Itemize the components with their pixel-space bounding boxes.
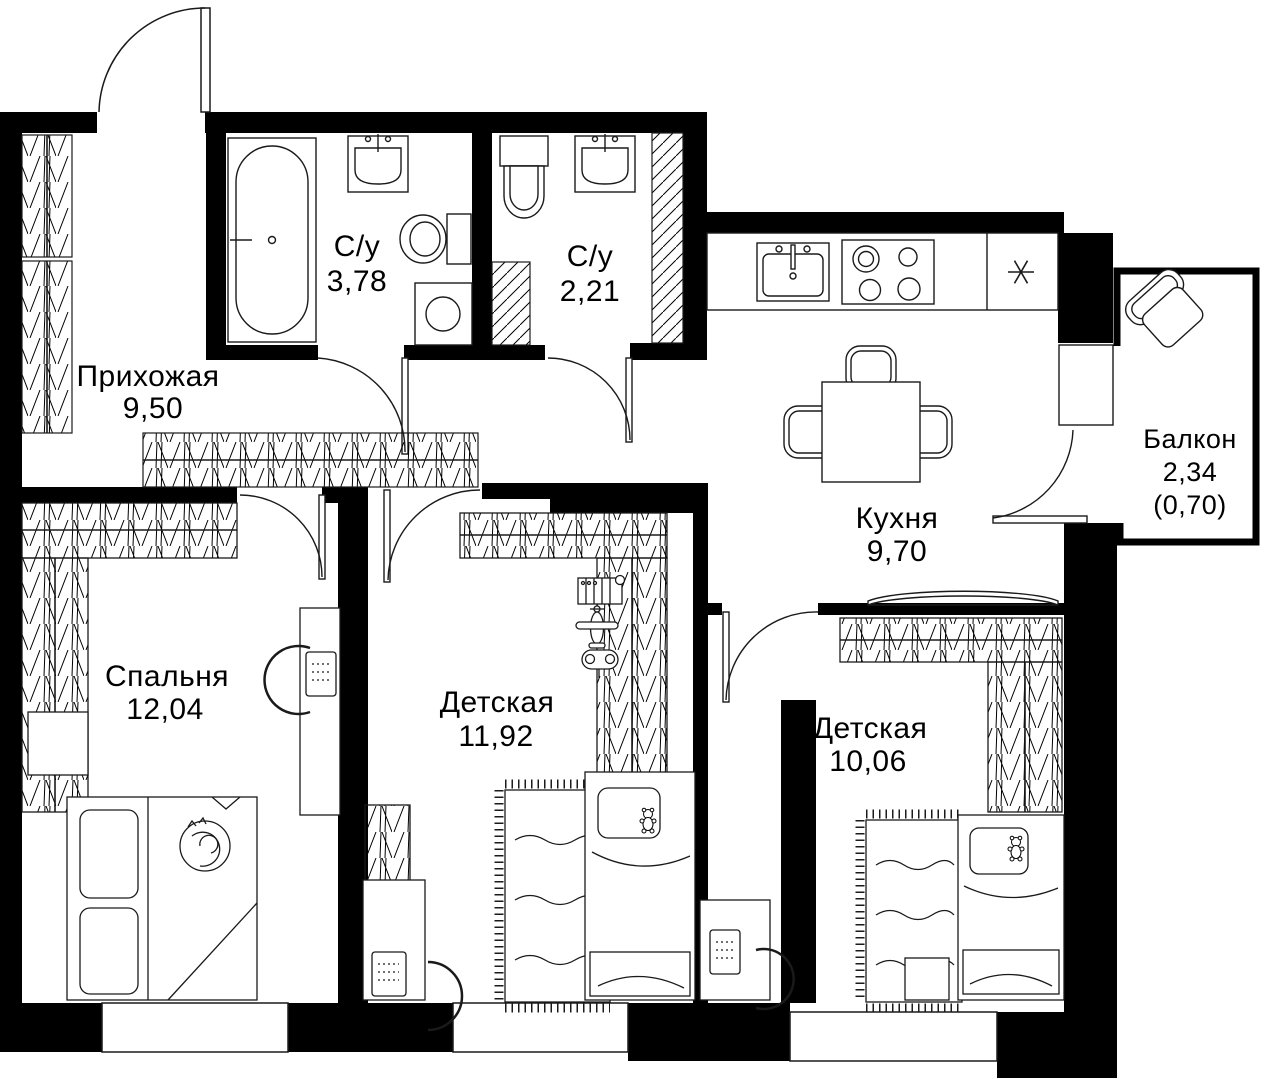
room-label-hallway: Прихожая xyxy=(76,360,219,393)
dining-table xyxy=(784,346,952,482)
room-area-balcony-secondary: (0,70) xyxy=(1153,490,1227,520)
washing-machine-icon xyxy=(415,283,472,345)
desk xyxy=(265,608,340,815)
door-leaf xyxy=(993,516,1087,523)
room-area-bathroom-2: 2,21 xyxy=(560,275,620,308)
bed-icon xyxy=(67,797,257,1000)
bed-footboard xyxy=(963,950,1059,994)
floor-plan-svg: Прихожая 9,50 С/у 3,78 С/у 2,21 Кухня 9,… xyxy=(0,0,1280,1079)
armchair-icon xyxy=(1121,265,1212,355)
window-kids-room-2 xyxy=(790,1012,997,1061)
room-label-kids-room-2: Детская xyxy=(813,712,928,745)
bedroom-door xyxy=(240,495,325,579)
bed-footboard xyxy=(590,952,690,996)
entrance-door xyxy=(99,8,210,112)
pillow xyxy=(80,908,138,994)
balcony-door xyxy=(993,345,1113,523)
room-area-hallway: 9,50 xyxy=(123,392,183,425)
door-leaf xyxy=(201,8,210,112)
desk xyxy=(700,900,794,1009)
floor-plan: Прихожая 9,50 С/у 3,78 С/у 2,21 Кухня 9,… xyxy=(0,0,1280,1079)
room-area-kids-room-2: 10,06 xyxy=(829,745,907,778)
room-label-bedroom: Спальня xyxy=(105,660,229,693)
bed-icon xyxy=(958,815,1064,1000)
door-arc xyxy=(240,495,322,577)
stove-icon xyxy=(842,240,934,304)
bathtub-icon xyxy=(228,138,316,342)
door-arc xyxy=(99,8,205,112)
door-arc xyxy=(993,430,1073,518)
laptop-icon xyxy=(306,652,336,696)
room-label-kitchen: Кухня xyxy=(856,502,939,535)
kitchen-sofa-icon xyxy=(868,591,1058,605)
room-area-bathroom-1: 3,78 xyxy=(327,265,387,298)
room-area-kitchen: 9,70 xyxy=(867,535,927,568)
room-area-bedroom: 12,04 xyxy=(126,693,204,726)
door-arc xyxy=(726,612,818,700)
piano-icon xyxy=(578,576,625,605)
room-area-balcony: 2,34 xyxy=(1163,457,1218,487)
room-label-bathroom-2: С/у xyxy=(567,240,614,273)
balcony-door-frame xyxy=(1059,345,1113,425)
room-area-kids-room-1: 11,92 xyxy=(458,720,533,753)
sink-icon xyxy=(348,134,408,192)
nightstand xyxy=(905,958,949,1000)
kitchen-sink-icon xyxy=(757,243,829,301)
room-label-kids-room-1: Детская xyxy=(440,686,555,719)
bed-icon xyxy=(585,772,695,1000)
room-label-bathroom-1: С/у xyxy=(334,230,381,263)
toilet-icon xyxy=(500,136,548,218)
window-kids-room-1 xyxy=(453,1003,628,1052)
door-arc xyxy=(548,358,630,440)
table-top xyxy=(822,382,920,482)
nightstand xyxy=(28,712,88,775)
duct-icon xyxy=(652,133,683,343)
window-bedroom xyxy=(102,1003,288,1052)
kids-room-2-door xyxy=(723,612,818,702)
door-leaf xyxy=(723,612,729,702)
duct-icon xyxy=(492,262,530,345)
laptop-icon xyxy=(372,952,406,996)
room-label-balcony: Балкон xyxy=(1143,424,1237,454)
laptop-icon xyxy=(710,930,740,974)
toilet-icon xyxy=(400,214,471,264)
bathroom-2-door xyxy=(548,358,632,442)
sink-icon xyxy=(575,134,635,192)
pillow xyxy=(80,810,138,898)
